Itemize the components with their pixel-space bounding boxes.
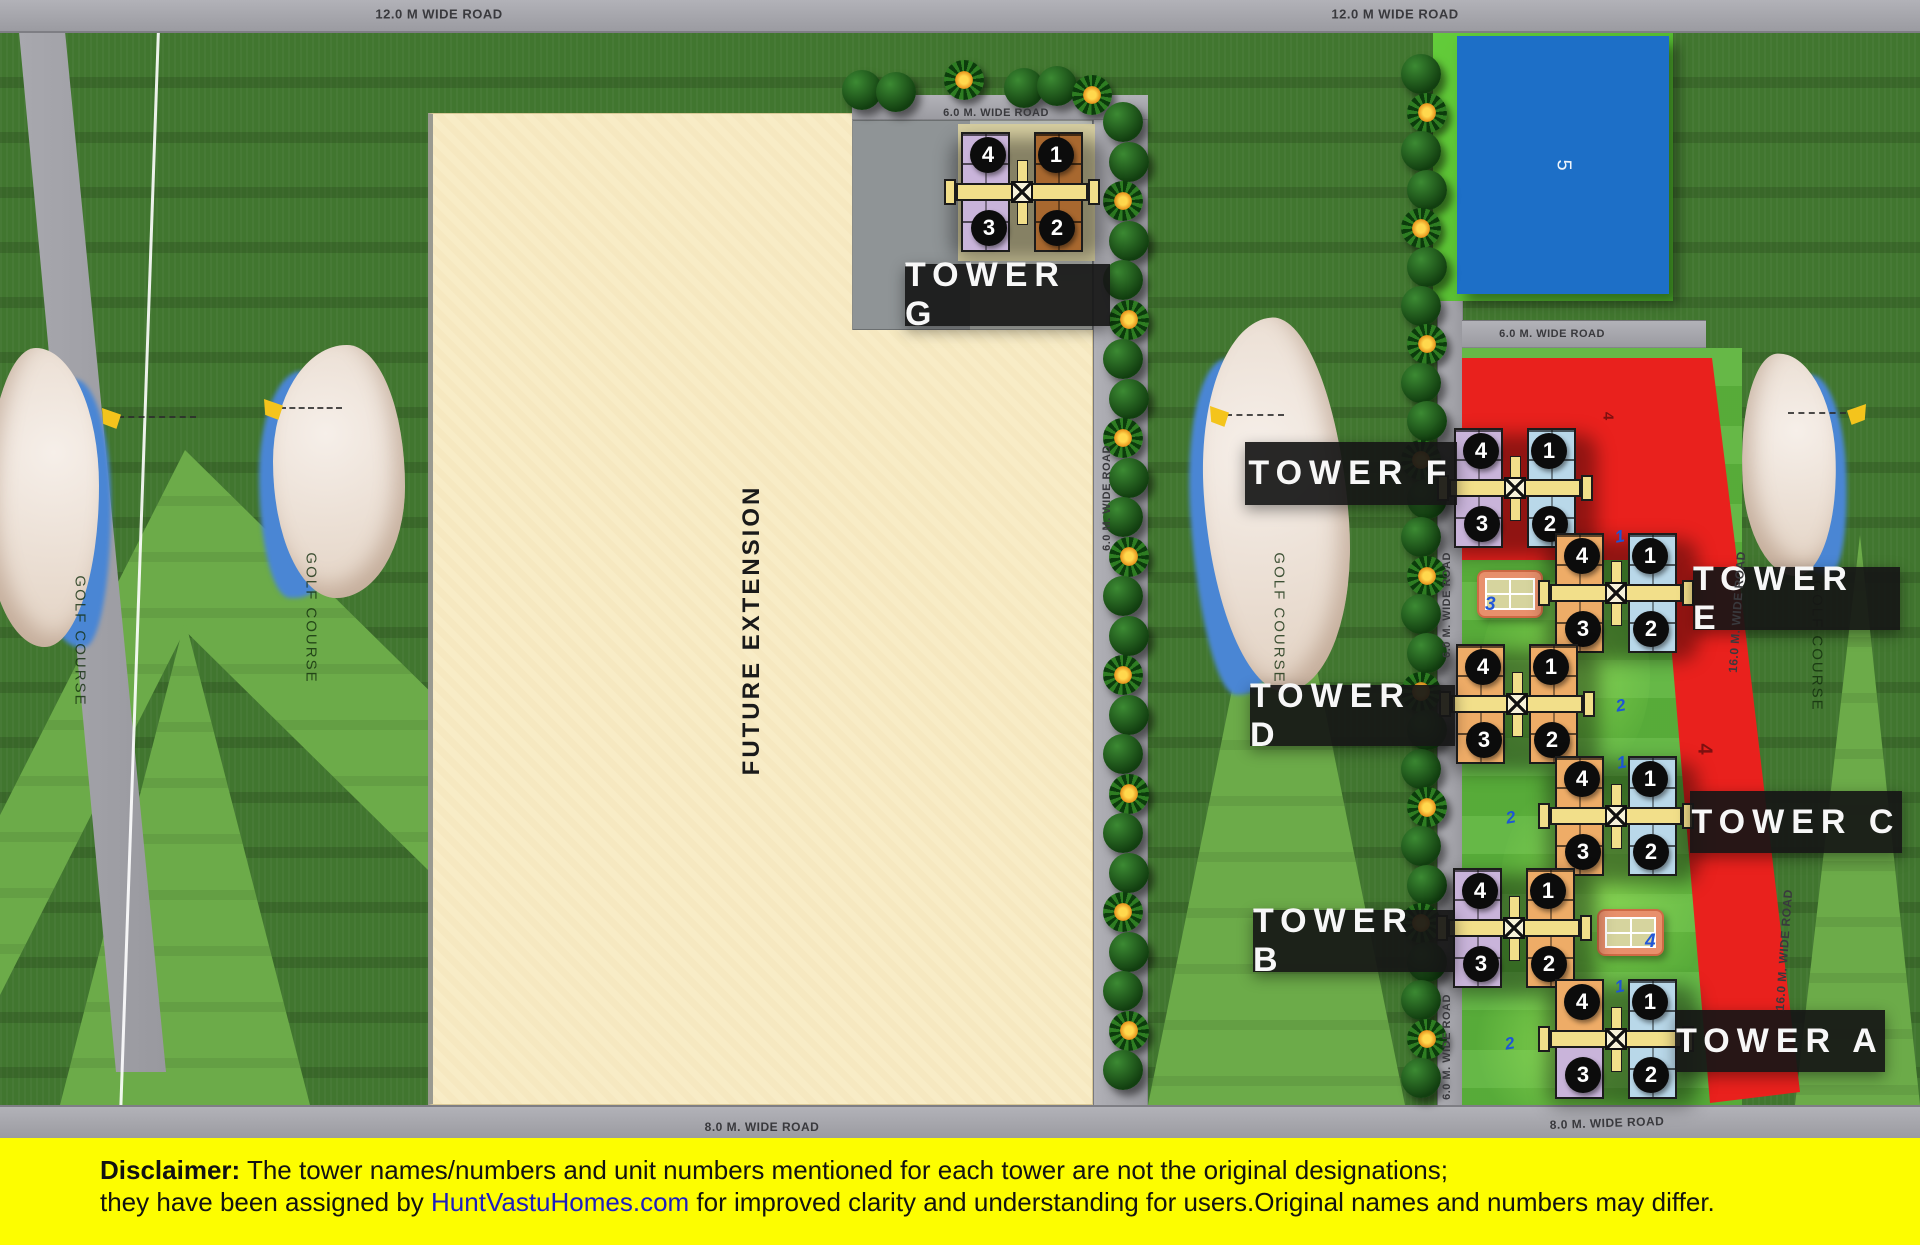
tree-icon [1103,813,1143,853]
court-number: 4 [1645,931,1656,953]
corridor-endcap [1538,1026,1550,1052]
stair-core-icon [1011,181,1033,203]
disclaimer-line2-post: for improved clarity and understanding f… [689,1187,1715,1217]
unit-circle-a-4[interactable]: 4 [1564,984,1600,1020]
unit-circle-b-4[interactable]: 4 [1462,873,1498,909]
tree-icon [1103,339,1143,379]
corridor-stub [1611,602,1622,626]
flag-dashed-line [1226,414,1284,416]
tower-label-g[interactable]: TOWER G [905,264,1110,326]
corridor-endcap [1580,915,1592,941]
stair-core-icon [1506,693,1528,715]
corridor-endcap [1538,803,1550,829]
corridor-stub [1017,201,1028,225]
tower-label-b[interactable]: TOWER B [1253,910,1455,972]
palm-tree-icon [1407,93,1447,133]
pool-parcel-number: 5 [1552,159,1575,170]
unit-circle-b-3[interactable]: 3 [1463,946,1499,982]
tree-icon [1037,66,1077,106]
tree-icon [1103,734,1143,774]
site-plan-map: FUTURE EXTENSION 5 Disclaimer: The tower… [0,0,1920,1245]
corridor-endcap [944,179,956,205]
bunker-sand [273,345,405,598]
tree-icon [1407,247,1447,287]
stair-core-icon [1504,477,1526,499]
tree-icon [1109,142,1149,182]
unit-circle-d-4[interactable]: 4 [1465,649,1501,685]
unit-circle-g-1[interactable]: 1 [1038,137,1074,173]
unit-circle-b-1[interactable]: 1 [1530,873,1566,909]
unit-circle-d-3[interactable]: 3 [1466,722,1502,758]
corridor-stub [1512,713,1523,737]
palm-tree-icon [944,60,984,100]
palm-tree-icon [1103,892,1143,932]
unit-circle-e-4[interactable]: 4 [1564,538,1600,574]
unit-circle-a-2[interactable]: 2 [1633,1057,1669,1093]
corridor-endcap [1088,179,1100,205]
unit-circle-f-4[interactable]: 4 [1463,433,1499,469]
stair-core-icon [1605,805,1627,827]
tower-label-e[interactable]: TOWER E [1693,567,1900,630]
tower-label-c[interactable]: TOWER C [1690,791,1902,853]
tower-label-a[interactable]: TOWER A [1675,1010,1885,1072]
unit-circle-g-3[interactable]: 3 [971,210,1007,246]
palm-tree-icon [1109,300,1149,340]
unit-circle-c-2[interactable]: 2 [1633,834,1669,870]
tree-icon [1103,1050,1143,1090]
tennis-court: 4 [1597,909,1664,956]
corridor-endcap [1538,580,1550,606]
tree-icon [1109,379,1149,419]
corridor-stub [1611,1048,1622,1072]
palm-tree-icon [1103,655,1143,695]
tree-icon [1407,170,1447,210]
swimming-pool-parcel: 5 [1457,36,1669,294]
brand-link[interactable]: HuntVastuHomes.com [431,1187,689,1217]
tree-icon [1401,131,1441,171]
flag-dashed-line [1788,412,1846,414]
palm-tree-icon [1407,324,1447,364]
tree-icon [1401,1058,1441,1098]
palm-tree-icon [1109,537,1149,577]
unit-circle-g-4[interactable]: 4 [970,137,1006,173]
tower-label-d[interactable]: TOWER D [1250,685,1455,746]
tree-icon [1109,221,1149,261]
sand-bunker [1736,351,1848,584]
tree-icon [1401,286,1441,326]
unit-circle-f-1[interactable]: 1 [1531,433,1567,469]
road-12m-top [0,0,1920,33]
tree-icon [1109,616,1149,656]
tree-icon [1109,695,1149,735]
court-number: 3 [1485,594,1496,616]
tree-icon [1103,971,1143,1011]
unit-circle-c-1[interactable]: 1 [1632,761,1668,797]
disclaimer-line2-pre: they have been assigned by [100,1187,431,1217]
tree-icon [1109,458,1149,498]
tennis-court: 3 [1477,570,1543,618]
unit-circle-a-1[interactable]: 1 [1632,984,1668,1020]
unit-circle-e-1[interactable]: 1 [1632,538,1668,574]
sand-bunker [0,348,106,653]
corridor-stub [1510,497,1521,521]
tree-icon [1401,54,1441,94]
flag-dashed-line [280,407,342,409]
stair-core-icon [1605,1028,1627,1050]
palm-tree-icon [1103,181,1143,221]
tree-icon [1103,576,1143,616]
tree-icon [1103,102,1143,142]
unit-circle-d-1[interactable]: 1 [1533,649,1569,685]
tree-icon [1401,749,1441,789]
sand-bunker [265,345,405,603]
disclaimer-line1: The tower names/numbers and unit numbers… [240,1155,1448,1185]
unit-circle-f-3[interactable]: 3 [1464,506,1500,542]
disclaimer-bar: Disclaimer: The tower names/numbers and … [0,1138,1920,1245]
disclaimer-heading: Disclaimer: [100,1155,240,1185]
stair-core-icon [1503,917,1525,939]
corridor-endcap [1581,475,1593,501]
corridor-stub [1509,937,1520,961]
tower-g-building [942,122,1102,262]
disclaimer-text: Disclaimer: The tower names/numbers and … [100,1154,1820,1218]
tree-icon [876,72,916,112]
tower-label-f[interactable]: TOWER F [1245,442,1457,505]
tree-icon [1109,853,1149,893]
tree-icon [1109,932,1149,972]
corridor-stub [1611,825,1622,849]
unit-circle-g-2[interactable]: 2 [1039,210,1075,246]
unit-circle-a-3[interactable]: 3 [1565,1057,1601,1093]
stair-core-icon [1605,582,1627,604]
palm-tree-icon [1109,774,1149,814]
tree-icon [1401,363,1441,403]
palm-tree-icon [1109,1011,1149,1051]
corridor-endcap [1583,691,1595,717]
flag-dashed-line [118,416,196,418]
unit-circle-c-4[interactable]: 4 [1564,761,1600,797]
unit-circle-e-2[interactable]: 2 [1633,611,1669,647]
